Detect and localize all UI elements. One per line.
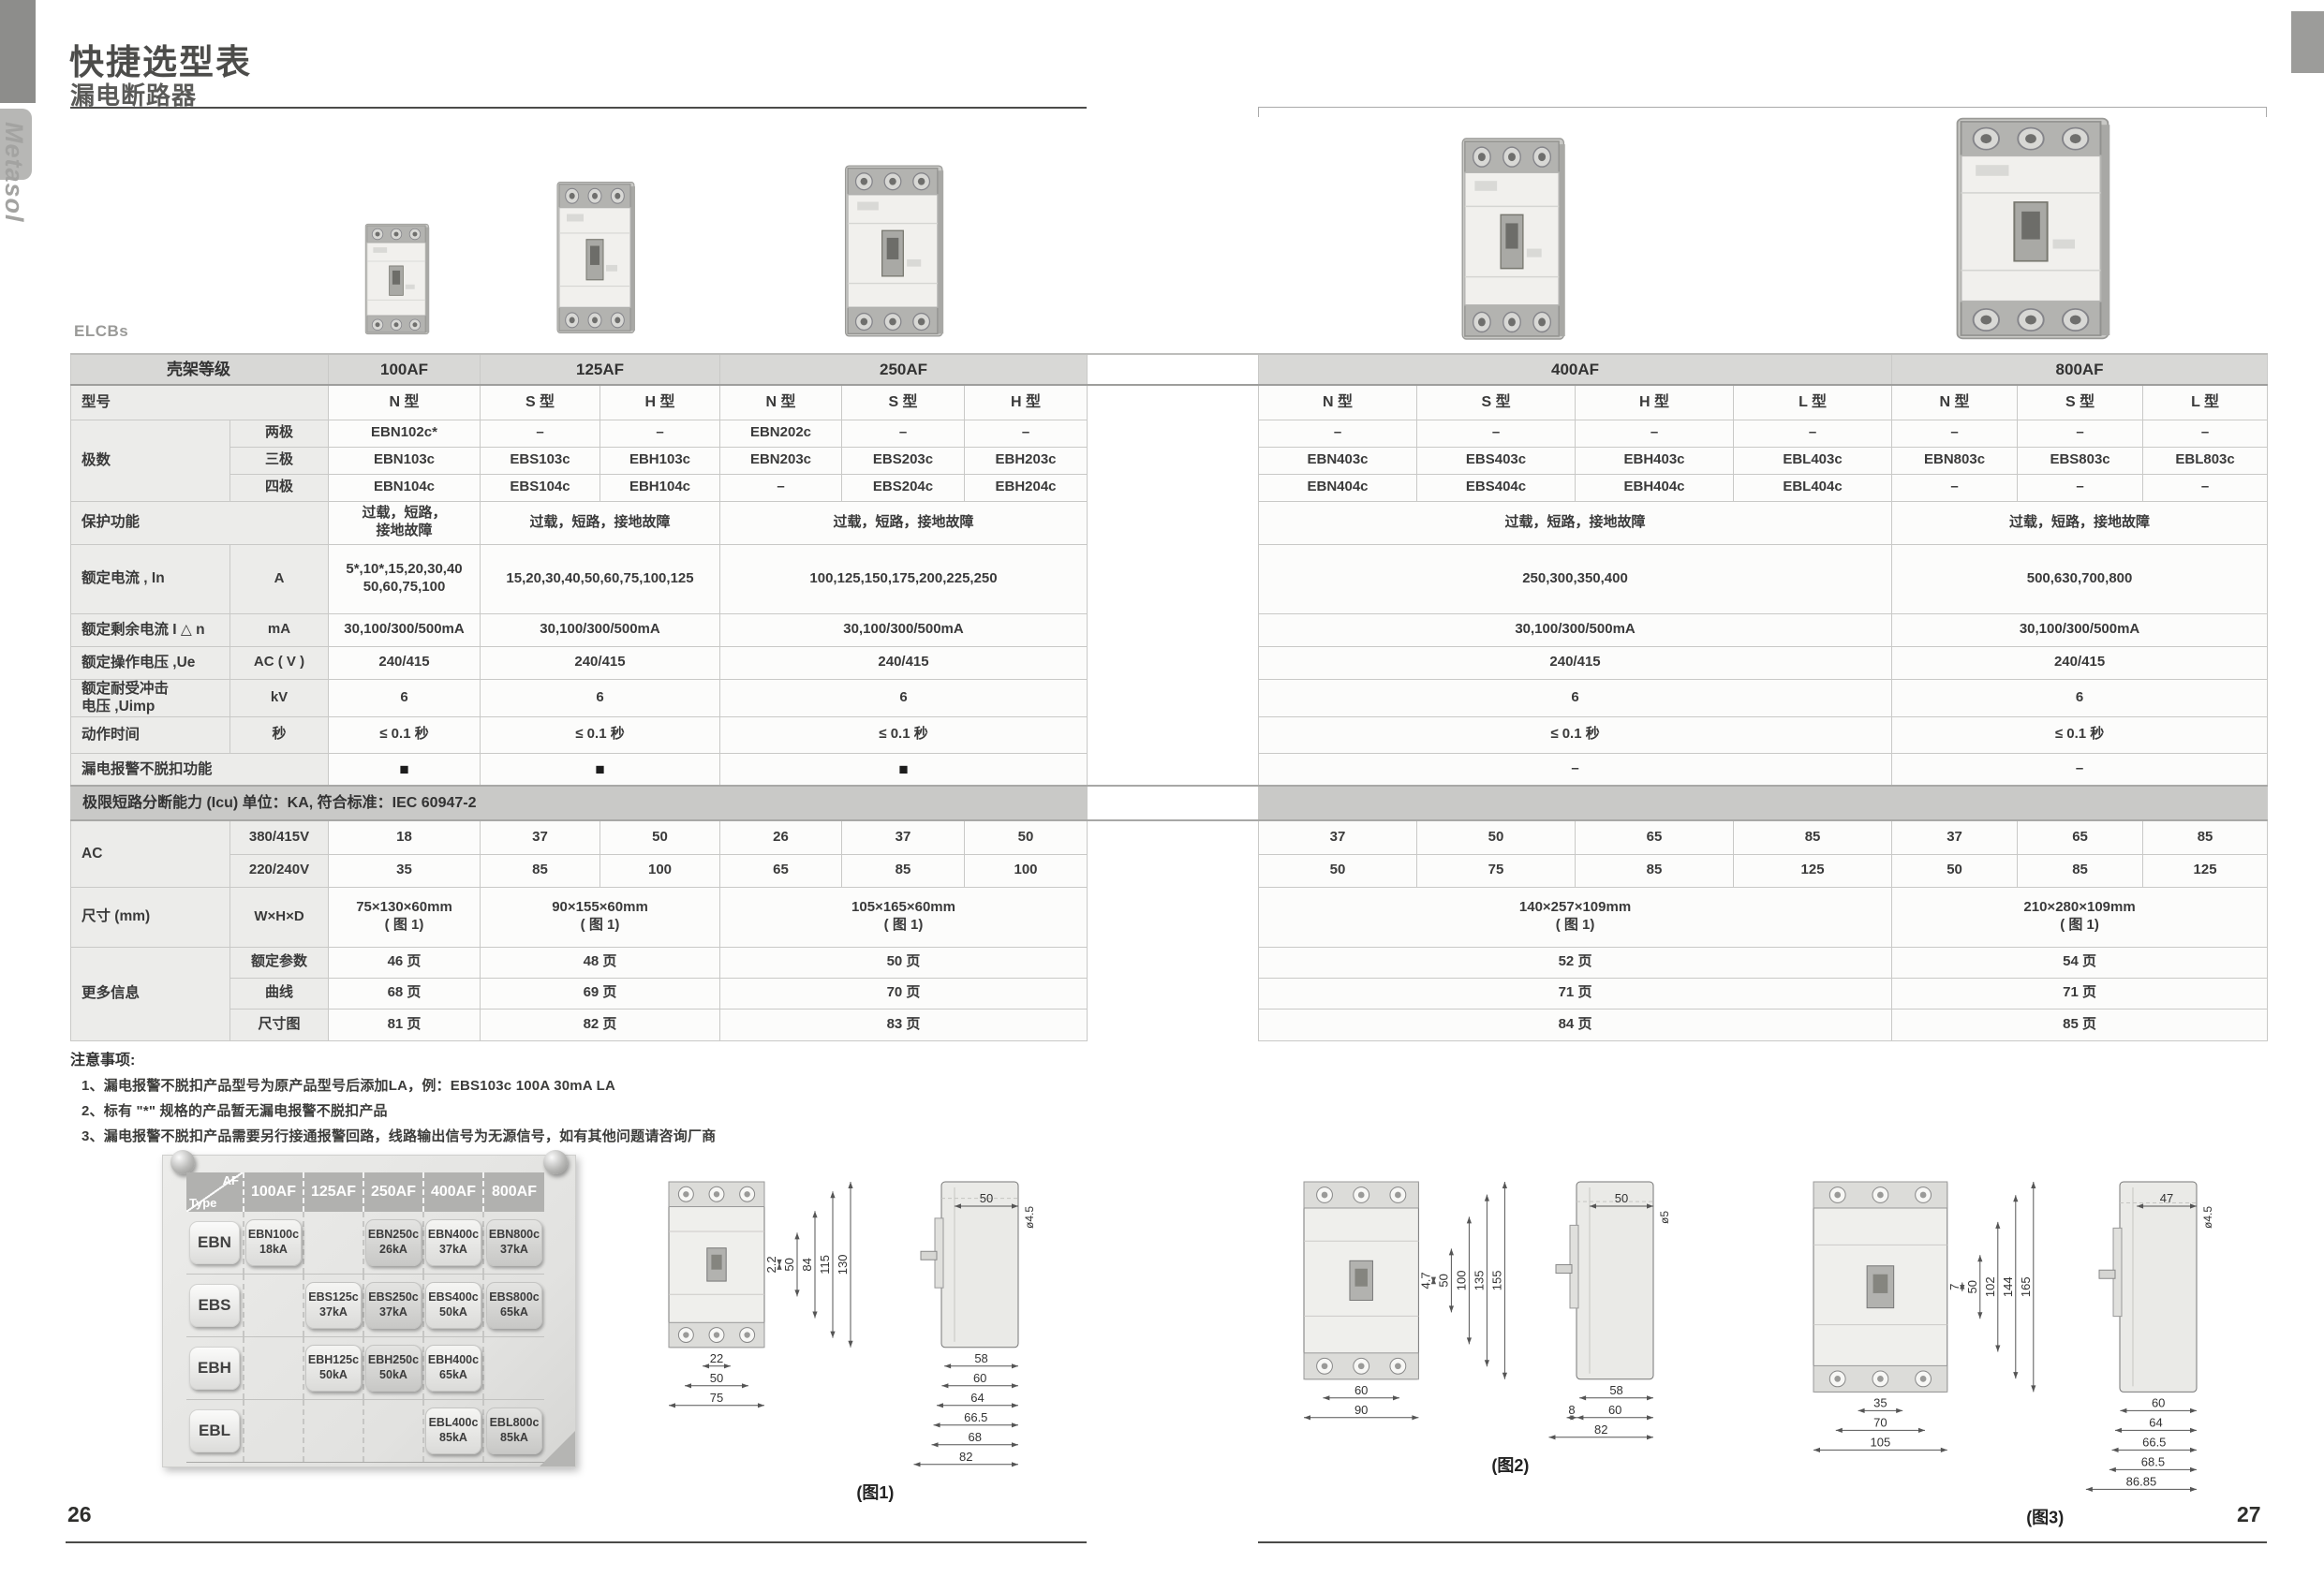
table-cell-r7-c1: mA <box>230 613 329 646</box>
table-cell-r2-c9: – <box>1259 420 1417 447</box>
svg-text:60: 60 <box>973 1371 986 1385</box>
product-chip-ebh125c: EBH125c50kA <box>305 1345 362 1392</box>
product-photo-125af <box>548 178 642 337</box>
product-chip-ebn400c: EBN400c37kA <box>425 1219 481 1266</box>
type-button-ebn: EBN <box>189 1221 240 1264</box>
table-cell-r16-c6: 52 页 <box>1259 947 1892 978</box>
matrix-corner-af: AF <box>223 1173 239 1187</box>
table-cell-r13-c4: 50 <box>600 820 720 854</box>
note-item: 3、漏电报警不脱扣产品需要另行接通报警回路，线路输出信号为无源信号，如有其他问题… <box>81 1126 1101 1145</box>
table-cell-r7-c6: 30,100/300/500mA <box>1259 613 1892 646</box>
selection-matrix: AFType100AF125AF250AF400AF800AFEBNEBN100… <box>186 1172 544 1463</box>
table-cell-r14-c1: 35 <box>329 854 481 887</box>
svg-text:50: 50 <box>710 1371 723 1385</box>
table-cell-r4-c6: EBH204c <box>965 474 1088 501</box>
table-cell-r10-c5 <box>1088 716 1259 753</box>
table-cell-r9-c3: 6 <box>481 679 720 716</box>
table-cell-r6-c2: 5*,10*,15,20,30,40 50,60,75,100 <box>329 544 481 613</box>
table-cell-r9-c0: 额定耐受冲击 电压 ,Uimp <box>71 679 230 716</box>
svg-text:50: 50 <box>1965 1280 1979 1293</box>
table-cell-r16-c3: 48 页 <box>481 947 720 978</box>
table-cell-r3-c2: EBS103c <box>481 447 600 474</box>
matrix-column-header: 100AF <box>244 1172 304 1212</box>
table-cell-r10-c6: ≤ 0.1 秒 <box>1259 716 1892 753</box>
table-cell-r4-c12: – <box>1892 474 2018 501</box>
svg-text:66.5: 66.5 <box>964 1410 987 1424</box>
table-cell-r14-c4: 65 <box>720 854 842 887</box>
dimension-figure-1: 2.2508411513022507550ø4.558606466.56882(… <box>646 1169 1087 1548</box>
svg-text:68.5: 68.5 <box>2141 1454 2165 1468</box>
table-cell-r5-c4 <box>1088 501 1259 544</box>
table-cell-r6-c1: A <box>230 544 329 613</box>
table-cell-r12-c2 <box>1259 786 2268 820</box>
table-cell-r4-c10: EBH404c <box>1576 474 1734 501</box>
table-cell-r2-c1: 两极 <box>230 420 329 447</box>
table-cell-r14-c3: 100 <box>600 854 720 887</box>
table-cell-r4-c11: EBL404c <box>1734 474 1892 501</box>
table-cell-r14-c9: 75 <box>1417 854 1576 887</box>
table-cell-r5-c5: 过载，短路，接地故障 <box>1259 501 1892 544</box>
table-cell-r3-c12: EBN803c <box>1892 447 2018 474</box>
table-cell-r15-c7: 210×280×109mm ( 图 1) <box>1892 887 2268 947</box>
push-pin-icon <box>543 1150 568 1174</box>
table-cell-r1-c13: S 型 <box>2018 385 2143 420</box>
table-cell-r11-c0: 漏电报警不脱扣功能 <box>71 753 329 786</box>
table-cell-r7-c7: 30,100/300/500mA <box>1892 613 2268 646</box>
table-cell-r0-c3: 250AF <box>720 354 1088 385</box>
matrix-column-header: 800AF <box>484 1172 544 1212</box>
svg-text:64: 64 <box>970 1391 984 1405</box>
table-cell-r1-c7 <box>1088 385 1259 420</box>
notes-section: 注意事项: 1、漏电报警不脱扣产品型号为原产品型号后添加LA，例：EBS103c… <box>70 1047 1101 1145</box>
table-cell-r8-c1: AC ( V ) <box>230 646 329 679</box>
table-cell-r18-c3: 83 页 <box>720 1009 1088 1040</box>
table-cell-r17-c3: 70 页 <box>720 978 1088 1009</box>
table-cell-r6-c7: 500,630,700,800 <box>1892 544 2268 613</box>
product-photo-800af <box>1939 112 2123 345</box>
table-cell-r5-c2: 过载，短路，接地故障 <box>481 501 720 544</box>
table-cell-r15-c5 <box>1088 887 1259 947</box>
product-chip-ebs800c: EBS800c65kA <box>486 1282 542 1329</box>
product-photo-100af <box>358 221 435 337</box>
table-cell-r12-c1 <box>1088 786 1259 820</box>
svg-text:115: 115 <box>818 1255 832 1275</box>
product-chip-ebs125c: EBS125c37kA <box>305 1282 362 1329</box>
svg-text:50: 50 <box>1615 1191 1628 1205</box>
svg-text:50: 50 <box>782 1258 796 1271</box>
table-cell-r6-c3: 15,20,30,40,50,60,75,100,125 <box>481 544 720 613</box>
table-cell-r10-c7: ≤ 0.1 秒 <box>1892 716 2268 753</box>
table-cell-r18-c0: 尺寸图 <box>230 1009 329 1040</box>
table-cell-r9-c7: 6 <box>1892 679 2268 716</box>
table-cell-r8-c7: 240/415 <box>1892 646 2268 679</box>
table-cell-r1-c5: S 型 <box>842 385 965 420</box>
table-cell-r5-c0: 保护功能 <box>71 501 329 544</box>
table-cell-r4-c1: EBN104c <box>329 474 481 501</box>
table-cell-r3-c3: EBH103c <box>600 447 720 474</box>
svg-text:66.5: 66.5 <box>2142 1435 2166 1449</box>
svg-text:8: 8 <box>1568 1403 1575 1417</box>
table-cell-r14-c0: 220/240V <box>230 854 329 887</box>
table-cell-r14-c6: 100 <box>965 854 1088 887</box>
svg-text:84: 84 <box>800 1258 814 1271</box>
svg-text:(图3): (图3) <box>2026 1508 2064 1526</box>
table-cell-r11-c3: ■ <box>720 753 1088 786</box>
svg-text:75: 75 <box>710 1391 723 1405</box>
svg-text:50: 50 <box>1436 1274 1450 1287</box>
table-cell-r16-c7: 54 页 <box>1892 947 2268 978</box>
table-cell-r11-c4 <box>1088 753 1259 786</box>
table-cell-r8-c2: 240/415 <box>329 646 481 679</box>
table-cell-r2-c11: – <box>1576 420 1734 447</box>
svg-text:130: 130 <box>836 1255 850 1275</box>
table-cell-r0-c5: 400AF <box>1259 354 1892 385</box>
table-cell-r2-c3: – <box>481 420 600 447</box>
table-cell-r8-c0: 额定操作电压 ,Ue <box>71 646 230 679</box>
table-cell-r4-c7 <box>1088 474 1259 501</box>
dimension-figure-2: 4.750100135155609050ø55886082(图2) <box>1281 1169 1722 1548</box>
product-chip-ebs400c: EBS400c50kA <box>425 1282 481 1329</box>
table-cell-r17-c1: 68 页 <box>329 978 481 1009</box>
table-cell-r17-c5: 71 页 <box>1259 978 1892 1009</box>
svg-text:165: 165 <box>2019 1276 2033 1297</box>
table-cell-r2-c12: – <box>1734 420 1892 447</box>
svg-text:90: 90 <box>1354 1403 1368 1417</box>
table-cell-r1-c11: L 型 <box>1734 385 1892 420</box>
brand-logo: Metasol <box>0 122 28 223</box>
svg-text:82: 82 <box>1594 1422 1607 1437</box>
table-cell-r15-c3: 90×155×60mm ( 图 1) <box>481 887 720 947</box>
svg-text:70: 70 <box>1873 1415 1887 1429</box>
svg-text:7: 7 <box>1947 1284 1961 1290</box>
table-cell-r13-c3: 37 <box>481 820 600 854</box>
table-cell-r1-c9: S 型 <box>1417 385 1576 420</box>
svg-text:ø4.5: ø4.5 <box>2201 1206 2214 1229</box>
table-cell-r3-c14: EBL803c <box>2143 447 2268 474</box>
svg-text:144: 144 <box>2001 1276 2015 1297</box>
table-cell-r2-c8 <box>1088 420 1259 447</box>
table-cell-r14-c8: 50 <box>1259 854 1417 887</box>
table-cell-r13-c11: 65 <box>1576 820 1734 854</box>
footer-rule-left <box>66 1541 1087 1543</box>
svg-text:155: 155 <box>1489 1271 1503 1291</box>
selection-matrix-note: AFType100AF125AF250AF400AF800AFEBNEBN100… <box>162 1155 576 1467</box>
table-cell-r16-c0: 更多信息 <box>71 947 230 1040</box>
table-cell-r3-c9: EBS403c <box>1417 447 1576 474</box>
product-photo-250af <box>834 161 952 341</box>
table-cell-r16-c2: 46 页 <box>329 947 481 978</box>
table-cell-r1-c0: 型号 <box>71 385 329 420</box>
svg-text:ø4.5: ø4.5 <box>1023 1206 1036 1229</box>
table-cell-r1-c2: S 型 <box>481 385 600 420</box>
svg-text:47: 47 <box>2160 1191 2173 1205</box>
table-cell-r7-c4: 30,100/300/500mA <box>720 613 1088 646</box>
table-cell-r13-c15: 85 <box>2143 820 2268 854</box>
table-cell-r3-c10: EBH403c <box>1576 447 1734 474</box>
table-cell-r16-c1: 额定参数 <box>230 947 329 978</box>
table-cell-r13-c5: 26 <box>720 820 842 854</box>
svg-text:60: 60 <box>1608 1403 1621 1417</box>
table-cell-r13-c9: 37 <box>1259 820 1417 854</box>
svg-text:82: 82 <box>959 1450 972 1464</box>
table-cell-r14-c13: 85 <box>2018 854 2143 887</box>
table-cell-r18-c6: 85 页 <box>1892 1009 2268 1040</box>
table-cell-r2-c4: – <box>600 420 720 447</box>
quick-selection-table: 壳架等级100AF125AF250AF400AF800AF型号N 型S 型H 型… <box>70 353 2267 1041</box>
table-cell-r9-c5 <box>1088 679 1259 716</box>
table-cell-r0-c1: 100AF <box>329 354 481 385</box>
table-cell-r1-c6: H 型 <box>965 385 1088 420</box>
table-cell-r14-c11: 125 <box>1734 854 1892 887</box>
note-item: 1、漏电报警不脱扣产品型号为原产品型号后添加LA，例：EBS103c 100A … <box>81 1075 1101 1095</box>
table-cell-r2-c10: – <box>1417 420 1576 447</box>
type-button-ebl: EBL <box>189 1409 240 1452</box>
table-cell-r1-c3: H 型 <box>600 385 720 420</box>
table-cell-r11-c6: – <box>1892 753 2268 786</box>
table-cell-r18-c2: 82 页 <box>481 1009 720 1040</box>
svg-text:22: 22 <box>710 1351 723 1365</box>
push-pin-icon <box>170 1150 195 1174</box>
svg-text:105: 105 <box>1871 1435 1891 1449</box>
product-chip-ebn250c: EBN250c26kA <box>365 1219 422 1266</box>
table-cell-r9-c6: 6 <box>1259 679 1892 716</box>
table-cell-r3-c13: EBS803c <box>2018 447 2143 474</box>
table-cell-r13-c1: 380/415V <box>230 820 329 854</box>
table-cell-r4-c5: EBS204c <box>842 474 965 501</box>
table-cell-r0-c6: 800AF <box>1892 354 2268 385</box>
svg-text:60: 60 <box>2152 1395 2165 1409</box>
table-cell-r3-c5: EBS203c <box>842 447 965 474</box>
table-cell-r5-c6: 过载，短路，接地故障 <box>1892 501 2268 544</box>
table-cell-r4-c14: – <box>2143 474 2268 501</box>
table-cell-r9-c2: 6 <box>329 679 481 716</box>
page-number-left: 26 <box>67 1502 92 1527</box>
table-cell-r17-c2: 69 页 <box>481 978 720 1009</box>
table-cell-r13-c10: 50 <box>1417 820 1576 854</box>
product-chip-ebh400c: EBH400c65kA <box>425 1345 481 1392</box>
table-cell-r16-c4: 50 页 <box>720 947 1088 978</box>
table-cell-r18-c5: 84 页 <box>1259 1009 1892 1040</box>
table-cell-r2-c14: – <box>2018 420 2143 447</box>
table-cell-r15-c6: 140×257×109mm ( 图 1) <box>1259 887 1892 947</box>
table-cell-r10-c3: ≤ 0.1 秒 <box>481 716 720 753</box>
table-cell-r13-c12: 85 <box>1734 820 1892 854</box>
type-button-ebs: EBS <box>189 1284 240 1327</box>
svg-text:(图2): (图2) <box>1491 1456 1529 1475</box>
table-cell-r10-c2: ≤ 0.1 秒 <box>329 716 481 753</box>
table-cell-r10-c4: ≤ 0.1 秒 <box>720 716 1088 753</box>
page-curl-icon <box>540 1431 575 1466</box>
table-cell-r1-c1: N 型 <box>329 385 481 420</box>
table-cell-r17-c4 <box>1088 978 1259 1009</box>
elcbs-label: ELCBs <box>74 322 128 341</box>
top-right-block <box>2291 11 2324 73</box>
right-page-top-rule <box>1258 107 2267 108</box>
table-cell-r11-c2: ■ <box>481 753 720 786</box>
matrix-corner-type: Type <box>189 1196 216 1210</box>
table-cell-r5-c3: 过载，短路，接地故障 <box>720 501 1088 544</box>
table-cell-r4-c4: – <box>720 474 842 501</box>
table-cell-r3-c6: EBH203c <box>965 447 1088 474</box>
table-cell-r7-c2: 30,100/300/500mA <box>329 613 481 646</box>
svg-text:(图1): (图1) <box>856 1483 894 1502</box>
svg-text:35: 35 <box>1873 1395 1887 1409</box>
svg-text:2.2: 2.2 <box>764 1256 778 1273</box>
table-cell-r0-c0: 壳架等级 <box>71 354 329 385</box>
svg-text:68: 68 <box>969 1430 982 1444</box>
table-cell-r13-c13: 37 <box>1892 820 2018 854</box>
svg-text:102: 102 <box>1983 1276 1997 1297</box>
table-cell-r15-c1: W×H×D <box>230 887 329 947</box>
table-cell-r13-c7: 50 <box>965 820 1088 854</box>
table-cell-r4-c2: EBS104c <box>481 474 600 501</box>
table-cell-r17-c0: 曲线 <box>230 978 329 1009</box>
table-cell-r1-c8: N 型 <box>1259 385 1417 420</box>
table-cell-r3-c11: EBL403c <box>1734 447 1892 474</box>
matrix-corner-cell: AFType <box>186 1172 244 1212</box>
product-chip-ebs250c: EBS250c37kA <box>365 1282 422 1329</box>
table-cell-r15-c4: 105×165×60mm ( 图 1) <box>720 887 1088 947</box>
table-cell-r11-c5: – <box>1259 753 1892 786</box>
page-number-right: 27 <box>2237 1502 2261 1527</box>
table-cell-r13-c14: 65 <box>2018 820 2143 854</box>
table-cell-r8-c4: 240/415 <box>720 646 1088 679</box>
table-cell-r2-c7: – <box>965 420 1088 447</box>
svg-text:86.85: 86.85 <box>2126 1474 2157 1488</box>
table-cell-r8-c6: 240/415 <box>1259 646 1892 679</box>
table-cell-r7-c3: 30,100/300/500mA <box>481 613 720 646</box>
product-chip-ebh250c: EBH250c50kA <box>365 1345 422 1392</box>
svg-text:ø5: ø5 <box>1658 1211 1671 1224</box>
table-cell-r10-c0: 动作时间 <box>71 716 230 753</box>
table-cell-r10-c1: 秒 <box>230 716 329 753</box>
table-cell-r14-c14: 125 <box>2143 854 2268 887</box>
table-cell-r18-c4 <box>1088 1009 1259 1040</box>
table-cell-r7-c5 <box>1088 613 1259 646</box>
matrix-column-header: 250AF <box>364 1172 424 1212</box>
corner-block <box>0 0 36 103</box>
table-cell-r14-c5: 85 <box>842 854 965 887</box>
table-cell-r4-c9: EBS404c <box>1417 474 1576 501</box>
note-item: 2、标有 "*" 规格的产品暂无漏电报警不脱扣产品 <box>81 1100 1101 1120</box>
table-cell-r3-c4: EBN203c <box>720 447 842 474</box>
matrix-column-header: 400AF <box>424 1172 484 1212</box>
table-cell-r6-c6: 250,300,350,400 <box>1259 544 1892 613</box>
table-cell-r2-c0: 极数 <box>71 420 230 501</box>
table-cell-r2-c6: – <box>842 420 965 447</box>
table-cell-r16-c5 <box>1088 947 1259 978</box>
table-cell-r15-c2: 75×130×60mm ( 图 1) <box>329 887 481 947</box>
table-cell-r1-c14: L 型 <box>2143 385 2268 420</box>
table-cell-r4-c13: – <box>2018 474 2143 501</box>
table-cell-r7-c0: 额定剩余电流 I △ n <box>71 613 230 646</box>
table-cell-r2-c13: – <box>1892 420 2018 447</box>
svg-text:58: 58 <box>974 1351 987 1365</box>
product-chip-ebl400c: EBL400c85kA <box>425 1408 481 1454</box>
table-cell-r13-c2: 18 <box>329 820 481 854</box>
table-cell-r18-c1: 81 页 <box>329 1009 481 1040</box>
table-cell-r0-c4 <box>1088 354 1259 385</box>
table-cell-r14-c2: 85 <box>481 854 600 887</box>
table-cell-r5-c1: 过载，短路， 接地故障 <box>329 501 481 544</box>
table-cell-r0-c2: 125AF <box>481 354 720 385</box>
table-cell-r8-c3: 240/415 <box>481 646 720 679</box>
table-cell-r1-c12: N 型 <box>1892 385 2018 420</box>
notes-items: 1、漏电报警不脱扣产品型号为原产品型号后添加LA，例：EBS103c 100A … <box>70 1075 1101 1145</box>
table-cell-r9-c4: 6 <box>720 679 1088 716</box>
table-cell-r3-c7 <box>1088 447 1259 474</box>
table-cell-r2-c5: EBN202c <box>720 420 842 447</box>
table-cell-r3-c0: 三极 <box>230 447 329 474</box>
table-cell-r13-c6: 37 <box>842 820 965 854</box>
table-cell-r4-c3: EBH104c <box>600 474 720 501</box>
table-cell-r4-c8: EBN404c <box>1259 474 1417 501</box>
table-cell-r6-c4: 100,125,150,175,200,225,250 <box>720 544 1088 613</box>
table-cell-r9-c1: kV <box>230 679 329 716</box>
table-cell-r8-c5 <box>1088 646 1259 679</box>
table-cell-r13-c0: AC <box>71 820 230 887</box>
svg-text:58: 58 <box>1609 1383 1622 1397</box>
svg-text:50: 50 <box>980 1191 993 1205</box>
table-cell-r13-c8 <box>1088 820 1259 854</box>
notes-heading: 注意事项: <box>70 1047 1101 1069</box>
svg-text:135: 135 <box>1472 1271 1486 1291</box>
table-cell-r6-c0: 额定电流 , In <box>71 544 230 613</box>
table-cell-r11-c1: ■ <box>329 753 481 786</box>
matrix-column-header: 125AF <box>304 1172 364 1212</box>
product-chip-ebl800c: EBL800c85kA <box>486 1408 542 1454</box>
table-cell-r3-c8: EBN403c <box>1259 447 1417 474</box>
dimension-figure-3: 750102144165357010547ø4.5606466.568.586.… <box>1797 1169 2274 1567</box>
title-rule <box>70 107 1087 109</box>
table-cell-r2-c15: – <box>2143 420 2268 447</box>
svg-text:4.7: 4.7 <box>1418 1272 1432 1289</box>
type-button-ebh: EBH <box>189 1347 240 1390</box>
product-chip-ebn800c: EBN800c37kA <box>486 1219 542 1266</box>
table-cell-r12-c0: 极限短路分断能力 (Icu) 单位：KA, 符合标准：IEC 60947-2 <box>71 786 1088 820</box>
table-cell-r14-c10: 85 <box>1576 854 1734 887</box>
product-chip-ebn100c: EBN100c18kA <box>245 1219 302 1266</box>
table-cell-r2-c2: EBN102c* <box>329 420 481 447</box>
table-cell-r6-c5 <box>1088 544 1259 613</box>
footer-rule-right <box>1258 1541 2267 1543</box>
svg-text:100: 100 <box>1454 1271 1468 1291</box>
table-cell-r1-c4: N 型 <box>720 385 842 420</box>
svg-text:64: 64 <box>2149 1415 2162 1429</box>
table-cell-r1-c10: H 型 <box>1576 385 1734 420</box>
table-cell-r14-c12: 50 <box>1892 854 2018 887</box>
product-photo-400af <box>1450 133 1574 345</box>
table-cell-r14-c7 <box>1088 854 1259 887</box>
svg-text:60: 60 <box>1354 1383 1368 1397</box>
table-cell-r15-c0: 尺寸 (mm) <box>71 887 230 947</box>
table-cell-r4-c0: 四极 <box>230 474 329 501</box>
table-cell-r3-c1: EBN103c <box>329 447 481 474</box>
table-cell-r17-c6: 71 页 <box>1892 978 2268 1009</box>
